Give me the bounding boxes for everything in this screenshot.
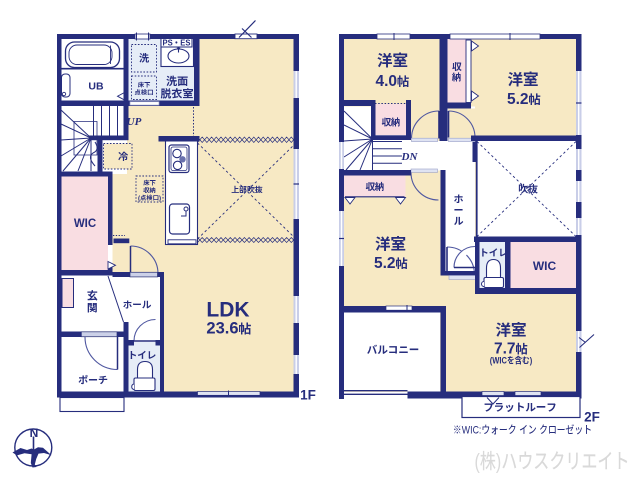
svg-text:ル: ル	[454, 217, 464, 228]
svg-text:ホ: ホ	[454, 195, 464, 206]
svg-text:(WICを含む): (WICを含む)	[490, 356, 533, 366]
svg-text:WIC: WIC	[74, 218, 96, 230]
svg-text:(株)ハウスクリエイト: (株)ハウスクリエイト	[475, 451, 630, 474]
svg-text:ポーチ: ポーチ	[78, 375, 108, 387]
svg-text:UB: UB	[88, 81, 104, 93]
svg-text:玄: 玄	[87, 290, 98, 303]
svg-text:収納: 収納	[142, 187, 156, 195]
svg-text:洋室: 洋室	[377, 53, 408, 70]
svg-text:納: 納	[452, 73, 462, 84]
svg-text:ー: ー	[454, 206, 464, 217]
svg-text:上部吹抜: 上部吹抜	[231, 186, 263, 195]
svg-text:冷: 冷	[118, 151, 129, 163]
svg-text:4.0帖: 4.0帖	[375, 73, 410, 90]
svg-text:※WIC:ウォーク イン クローゼット: ※WIC:ウォーク イン クローゼット	[453, 424, 592, 437]
svg-text:23.6帖: 23.6帖	[206, 320, 251, 338]
svg-text:バルコニー: バルコニー	[367, 345, 420, 357]
svg-text:洗面: 洗面	[166, 75, 188, 88]
svg-text:ホール: ホール	[123, 300, 152, 311]
svg-text:1F: 1F	[300, 388, 316, 403]
svg-text:洋室: 洋室	[507, 72, 538, 89]
svg-text:(点検口): (点検口)	[138, 194, 161, 202]
svg-text:LDK: LDK	[206, 299, 249, 322]
svg-text:5.2帖: 5.2帖	[507, 91, 542, 108]
svg-text:PS・ES: PS・ES	[163, 39, 191, 48]
svg-text:5.2帖: 5.2帖	[374, 255, 409, 272]
svg-text:関: 関	[87, 303, 98, 315]
svg-text:脱衣室: 脱衣室	[161, 88, 194, 101]
svg-text:洋室: 洋室	[375, 237, 406, 254]
svg-text:収納: 収納	[381, 117, 401, 129]
svg-text:トイレ: トイレ	[128, 351, 157, 362]
svg-text:WIC: WIC	[533, 259, 557, 273]
svg-text:洗: 洗	[139, 53, 150, 65]
svg-text:フラットルーフ: フラットルーフ	[483, 402, 557, 414]
svg-text:収納: 収納	[365, 181, 385, 193]
svg-text:トイレ: トイレ	[479, 248, 508, 259]
svg-text:洋室: 洋室	[495, 323, 526, 340]
svg-text:DN: DN	[401, 151, 419, 163]
svg-text:床下: 床下	[143, 179, 156, 187]
svg-text:2F: 2F	[584, 410, 600, 425]
svg-text:吹抜: 吹抜	[518, 184, 538, 196]
svg-text:収: 収	[452, 61, 462, 73]
svg-text:床下: 床下	[138, 81, 151, 89]
svg-text:UP: UP	[127, 116, 142, 128]
svg-text:点検口: 点検口	[135, 89, 154, 97]
